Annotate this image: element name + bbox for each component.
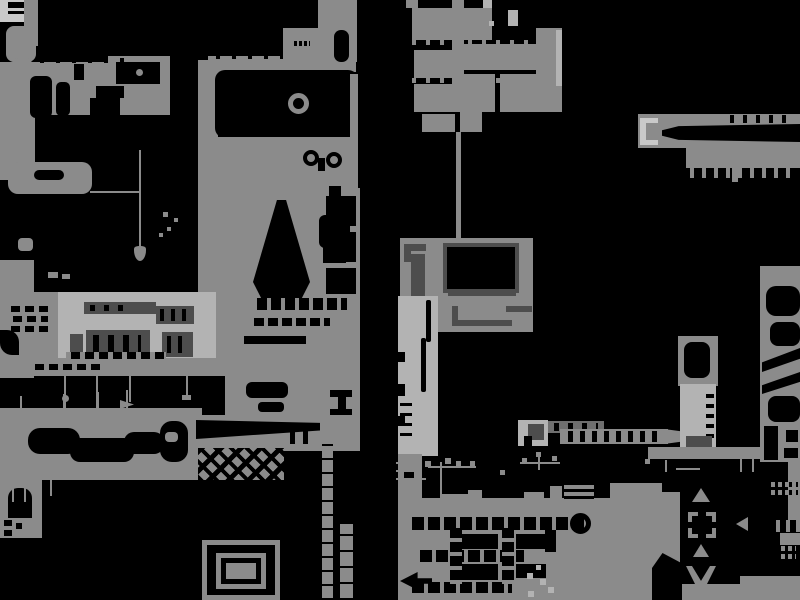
squiggle-ring [326, 152, 342, 168]
light-speck [548, 587, 554, 593]
thin-dot [645, 459, 650, 464]
re-spike-big [732, 162, 738, 182]
ship-hook [524, 436, 532, 446]
notched-room [326, 232, 356, 262]
bracket-square-icon [688, 528, 698, 538]
bc-room [516, 534, 548, 549]
machine-bar-slots [90, 305, 132, 311]
light-col-notch [398, 384, 405, 396]
tc-column [318, 0, 357, 30]
cave-dot [159, 233, 163, 237]
shaft-column [340, 524, 353, 600]
const-line [520, 462, 560, 464]
ll-square-bit [16, 523, 22, 529]
ll-square-bit [4, 530, 12, 536]
bc-high-plateau [610, 483, 662, 499]
squiggle-ring [303, 150, 319, 166]
tc-wave-gap [334, 30, 349, 62]
bc-right-ext [660, 492, 680, 502]
base-band [648, 447, 766, 459]
bracket-square-icon [706, 512, 716, 522]
mr-path [452, 320, 512, 326]
re-lower [686, 146, 800, 168]
under-line [24, 480, 26, 502]
cave-blob-small [18, 238, 33, 251]
const-dot [552, 456, 557, 461]
strut-dash [396, 470, 416, 472]
re-bracket [640, 140, 658, 145]
light-speck [536, 565, 541, 570]
cave-dot [167, 227, 171, 231]
comb [778, 546, 796, 551]
tr-door-ticks [412, 78, 538, 83]
notched-room [326, 268, 356, 294]
vine-dot [62, 395, 69, 402]
tr-room [462, 8, 492, 40]
ship-slats [568, 431, 660, 442]
under-line [50, 480, 52, 496]
bc-room [462, 564, 498, 580]
mr-underline [448, 292, 516, 296]
light-col-dashes [400, 398, 412, 436]
bc-bump [402, 492, 420, 500]
thin-mark [665, 460, 667, 472]
strut-node [500, 470, 505, 475]
ring-icon [288, 93, 309, 114]
cave-dot [174, 218, 178, 222]
cave-arm-notch [34, 170, 64, 180]
re-teeth [730, 115, 792, 123]
gray-slot-row [8, 316, 48, 322]
right-edge-block [780, 533, 800, 545]
light-speck [527, 573, 533, 579]
rs-bit [786, 430, 798, 442]
re-spikes [690, 168, 796, 178]
bc-corridor [408, 517, 586, 530]
black-ring-icon [570, 513, 591, 534]
col-pocket [258, 402, 284, 412]
strut-node [445, 458, 451, 464]
mr-spiral [404, 244, 411, 262]
bc-shaft [450, 528, 462, 584]
dpad-up-icon [693, 544, 709, 557]
bc-bump [468, 490, 482, 499]
dpad-left-icon [736, 517, 748, 531]
strut-node [425, 461, 431, 467]
game-map-screen [0, 0, 800, 600]
tr-room [422, 114, 455, 132]
shaft-column [322, 440, 333, 600]
vine-line [20, 396, 22, 408]
rs-bit [784, 448, 798, 458]
tr-topleft-bit [406, 0, 418, 8]
br-bottom-band [740, 576, 800, 586]
comb [768, 482, 798, 487]
notched-room [326, 196, 356, 226]
rs-cave [768, 396, 800, 422]
cave-dot [163, 212, 168, 217]
c-right-sliver [350, 74, 358, 138]
bc-bump [524, 492, 544, 499]
bracket-square-icon [706, 528, 716, 538]
bc-shaft [502, 528, 514, 584]
dpad-up-icon [692, 488, 710, 502]
pr-slot-row [244, 336, 306, 344]
bc-ladder [564, 482, 594, 499]
const-line [538, 452, 540, 470]
tr-light-patch [489, 21, 494, 26]
ll-s-inner [165, 432, 178, 442]
rubble-speckle [198, 448, 284, 480]
bc-room [462, 534, 498, 549]
ul-cave3 [74, 64, 84, 80]
strut-line [428, 466, 476, 468]
tr-connector [456, 132, 461, 238]
mr-light-corner [398, 296, 438, 332]
col-room-cave [684, 342, 710, 378]
under-line [12, 480, 14, 502]
strut-node [470, 461, 475, 466]
rs-bar [764, 426, 778, 460]
light-speck [540, 579, 546, 585]
tr-room [414, 50, 454, 78]
map-canvas[interactable] [0, 0, 800, 600]
ul-corridor [96, 86, 124, 98]
mr-black-room [447, 247, 515, 289]
re-cave [662, 124, 800, 142]
light-col-notch [398, 352, 405, 362]
thin-mark [752, 454, 754, 472]
tc-dashes [292, 41, 310, 46]
comb [768, 490, 798, 495]
diag-blob [0, 330, 19, 355]
re-bracket [640, 118, 658, 123]
mr-path [506, 306, 532, 312]
ll-cave [124, 432, 164, 454]
big-column-dashes [706, 390, 714, 438]
tr-light-patch [483, 0, 492, 8]
pr-slot-row [250, 318, 330, 326]
rs-cave [770, 322, 800, 346]
col-pocket [246, 382, 288, 398]
ul-top-teeth [40, 58, 136, 63]
bc-bump [550, 486, 562, 499]
gray-slot-row [6, 306, 50, 312]
vine-line-v [139, 150, 141, 248]
light-col-squiggle [421, 338, 426, 392]
band-slot-row [30, 364, 100, 370]
vine-line-h [90, 191, 140, 193]
table-glyph [290, 430, 295, 444]
machine-slats [160, 309, 192, 321]
hanging-line [129, 376, 131, 402]
light-col-squiggle [426, 300, 431, 342]
hanging-line [186, 376, 188, 396]
thin-mark [740, 458, 742, 472]
ul-room-dot [136, 69, 143, 76]
hanging-tip [182, 395, 191, 400]
tr-room [412, 8, 454, 40]
bracket-square-icon [688, 512, 698, 522]
machine-left-d [70, 334, 83, 354]
cave-bar [48, 272, 58, 278]
tr-bottom [460, 112, 482, 132]
vine-line [97, 392, 99, 408]
table-glyph [303, 430, 308, 444]
z-glyph-bar [330, 390, 352, 397]
strut-dash [396, 462, 422, 464]
machine-windows [93, 335, 141, 352]
machine-block2-slots [167, 336, 189, 353]
squiggle-bar [318, 158, 325, 171]
tr-room [462, 44, 540, 70]
light-speck [528, 591, 534, 597]
ul-cave1 [30, 76, 52, 118]
cave-bar [62, 274, 70, 279]
tl-black-bar [8, 2, 25, 8]
tr-door-ticks [412, 40, 538, 45]
tr-light-patch [556, 30, 562, 86]
strut-node [456, 461, 461, 466]
thin-mark [676, 468, 700, 470]
rs-cave [766, 286, 800, 316]
band-slot-row [66, 352, 166, 359]
tl-blob [6, 26, 36, 62]
comb [778, 554, 796, 559]
ll-square-bit [4, 520, 12, 526]
c-blob-arm [218, 112, 268, 140]
comb [776, 520, 800, 532]
bc-bump [440, 494, 470, 500]
ul-cave2 [56, 82, 70, 116]
hash-icon [131, 284, 143, 287]
strut-dash [396, 478, 426, 480]
nested-rect-core [226, 563, 256, 579]
cave-main [35, 115, 215, 295]
mr-spiral [412, 255, 421, 262]
tr-light-patch [508, 10, 518, 26]
tr-room [414, 84, 452, 112]
